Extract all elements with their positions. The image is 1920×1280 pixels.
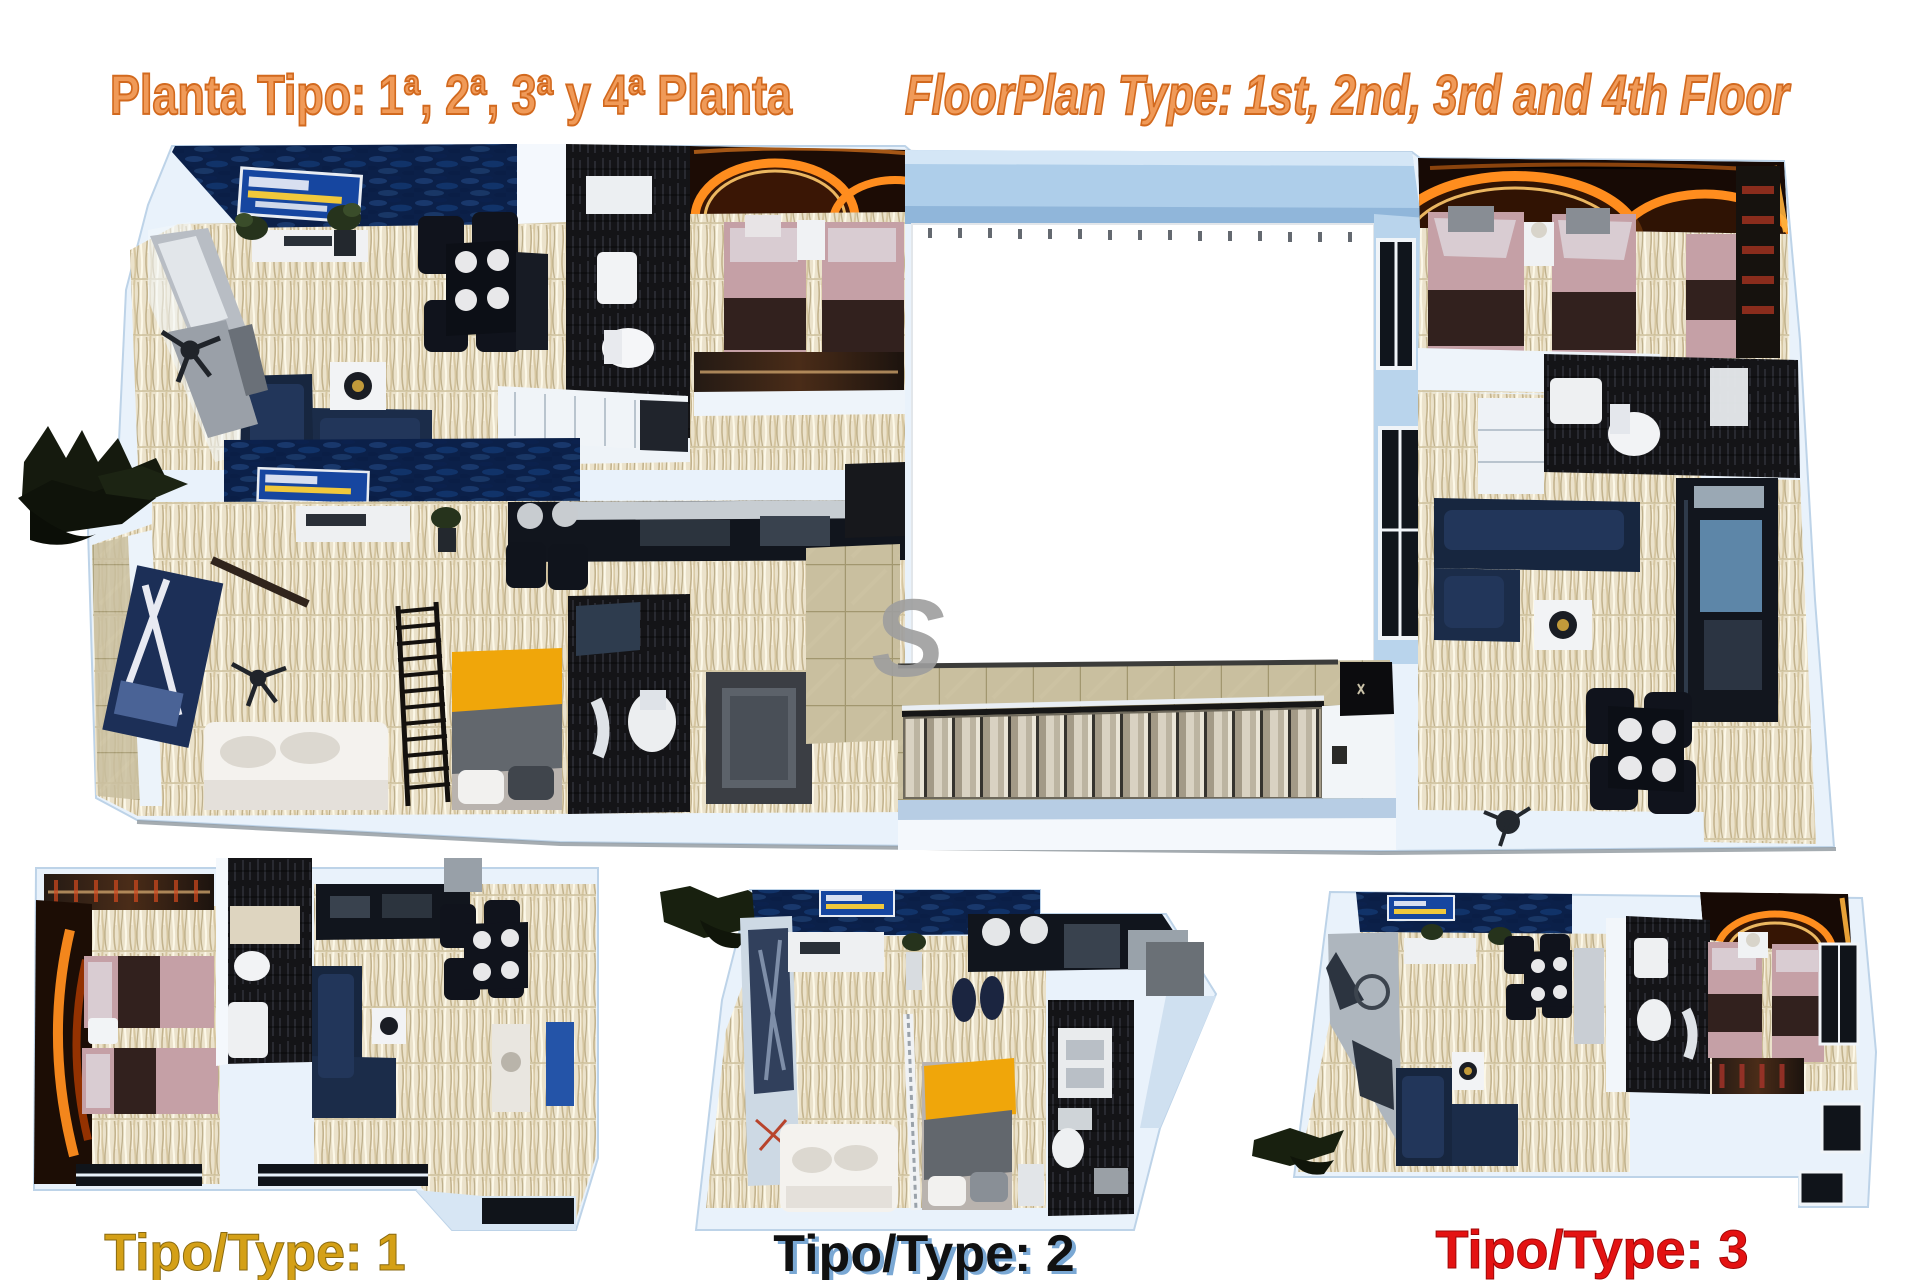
svg-text:FloorPlan Type: 1st, 2nd, 3rd: FloorPlan Type: 1st, 2nd, 3rd and 4th Fl… bbox=[905, 63, 1791, 126]
svg-text:S: S bbox=[871, 577, 944, 700]
svg-text:Tipo/Type: 2: Tipo/Type: 2 bbox=[773, 1225, 1074, 1280]
svg-text:Tipo/Type: 1: Tipo/Type: 1 bbox=[104, 1224, 405, 1280]
svg-text:Tipo/Type: 3: Tipo/Type: 3 bbox=[1435, 1220, 1748, 1280]
svg-text:Planta Tipo: 1ª, 2ª, 3ª y 4ª P: Planta Tipo: 1ª, 2ª, 3ª y 4ª Planta bbox=[110, 63, 793, 126]
